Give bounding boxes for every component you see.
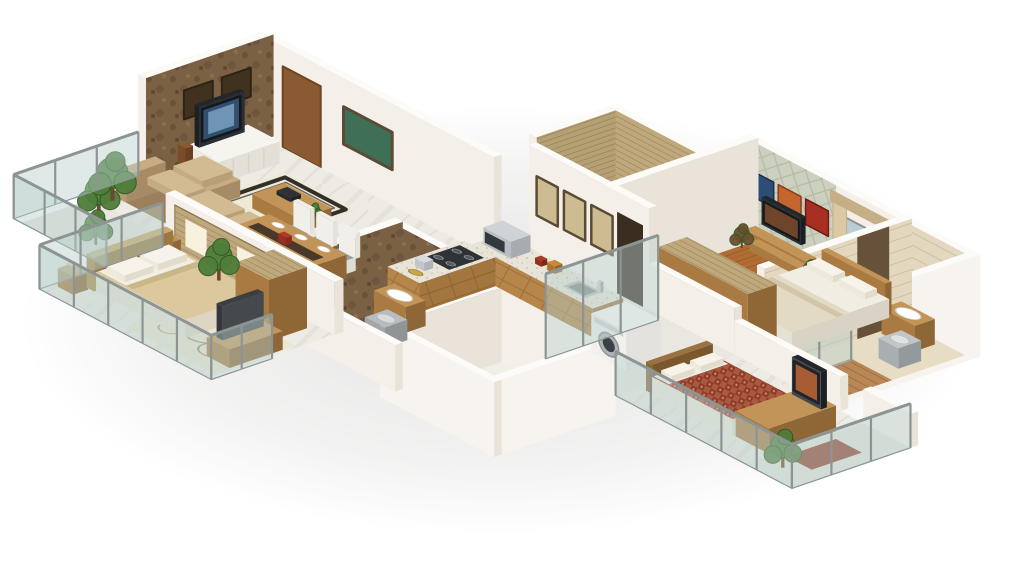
cabinet-seam	[233, 159, 235, 178]
floorplan-render	[0, 0, 1024, 575]
floorplan-stage	[0, 0, 1024, 575]
cabinet-seam	[263, 148, 265, 167]
cabinet-seam	[248, 153, 250, 172]
